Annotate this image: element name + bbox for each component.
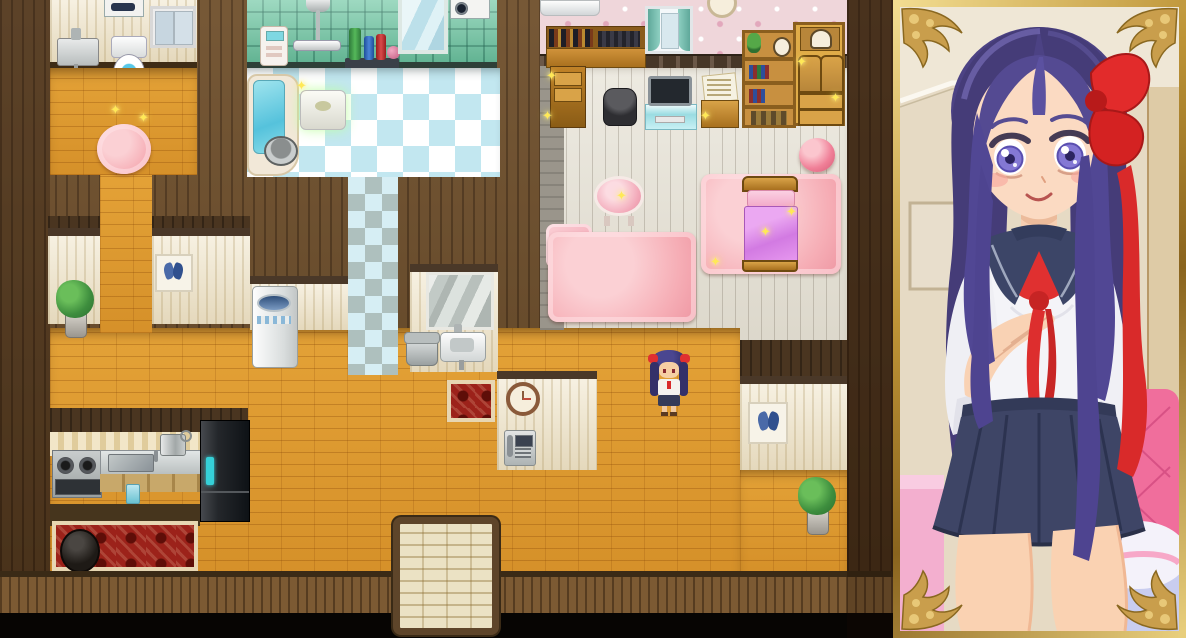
sprite-eye bbox=[672, 369, 675, 373]
bottle-red bbox=[376, 34, 386, 60]
panel-buttons bbox=[266, 43, 282, 57]
sparkle-icon: ✦ bbox=[830, 92, 841, 105]
stove bbox=[52, 450, 102, 498]
bookshelf bbox=[742, 30, 796, 128]
wall-clock bbox=[705, 0, 739, 20]
outer-wall-right-over bbox=[847, 0, 893, 638]
large-pink-rug bbox=[548, 232, 696, 322]
east-wall-top bbox=[740, 340, 847, 376]
bath-mirror bbox=[398, 0, 448, 54]
washer-lid bbox=[111, 3, 135, 11]
panel-screen bbox=[266, 31, 284, 41]
sparkle-icon: ✦ bbox=[110, 104, 121, 117]
tub-rim bbox=[404, 332, 440, 344]
burner bbox=[79, 457, 96, 474]
drum-washer bbox=[450, 0, 490, 19]
bath-corridor-tiles bbox=[348, 177, 398, 375]
shelf-clock bbox=[773, 37, 791, 57]
sparkle-icon: ✦ bbox=[138, 112, 149, 125]
dresser-door bbox=[820, 55, 844, 93]
sparkle-icon: ✦ bbox=[710, 256, 721, 269]
sprite-hair-fall bbox=[679, 362, 688, 396]
fridge-divider bbox=[201, 491, 249, 493]
pink-ball bbox=[799, 138, 835, 172]
curtain-left bbox=[648, 9, 660, 51]
laundry-tub bbox=[404, 330, 438, 366]
dresser-clock bbox=[810, 29, 832, 49]
game-screen: Love bbox=[0, 0, 1186, 638]
shelf-plant bbox=[747, 33, 761, 53]
sprite-skirt bbox=[658, 395, 680, 406]
sprite-shoe bbox=[670, 412, 677, 416]
wash-mirror bbox=[426, 272, 494, 330]
shower-hose bbox=[316, 10, 320, 42]
cooking-pot bbox=[158, 430, 188, 456]
character-portrait-panel bbox=[893, 0, 1186, 638]
butterfly-wing bbox=[171, 262, 185, 280]
counter-sink bbox=[108, 454, 154, 472]
bath-stool bbox=[300, 90, 346, 130]
portrait-illustration bbox=[900, 7, 1179, 631]
butterfly-picture bbox=[748, 402, 788, 444]
paper-lines bbox=[707, 76, 731, 96]
sparkle-icon: ✦ bbox=[786, 206, 797, 219]
pink-fluffy-rug bbox=[97, 124, 151, 174]
dresser-drawer bbox=[798, 109, 844, 126]
wall-sink bbox=[55, 26, 99, 68]
stool-soap bbox=[315, 101, 331, 111]
cup bbox=[126, 484, 140, 504]
pot-handle bbox=[180, 430, 192, 442]
sparkle-icon: ✦ bbox=[616, 190, 627, 203]
shelf-board bbox=[745, 81, 793, 85]
desk-drawer bbox=[554, 72, 582, 86]
sprite-blouse bbox=[658, 379, 680, 396]
baskets bbox=[751, 111, 787, 125]
shower-bar bbox=[293, 40, 341, 51]
sink-bowl bbox=[450, 338, 474, 352]
sparkle-icon: ✦ bbox=[760, 226, 771, 239]
sprite-eye bbox=[663, 369, 666, 373]
window-pane bbox=[155, 11, 174, 45]
plant-foliage bbox=[798, 477, 836, 515]
iron-pot bbox=[60, 529, 100, 573]
sparkle-icon: ✦ bbox=[796, 56, 807, 69]
sparkle-icon: ✦ bbox=[542, 110, 553, 123]
trash-bin bbox=[603, 88, 637, 126]
sprite-face bbox=[659, 362, 679, 378]
drum-door bbox=[455, 2, 468, 15]
window bbox=[150, 6, 196, 48]
desk-books-row bbox=[598, 31, 640, 47]
desk-drawer bbox=[554, 88, 582, 102]
small-red-rug bbox=[447, 380, 495, 422]
sparkle-icon: ✦ bbox=[296, 80, 307, 93]
refrigerator bbox=[200, 420, 250, 522]
books bbox=[749, 89, 765, 103]
air-conditioner bbox=[540, 0, 600, 16]
oven-door bbox=[55, 479, 101, 495]
player-character[interactable] bbox=[648, 348, 690, 416]
bottle-blue bbox=[364, 36, 374, 60]
outer-wall-left bbox=[0, 0, 50, 638]
washer-lid-open bbox=[257, 294, 291, 312]
phone-keys bbox=[515, 448, 531, 458]
potted-plant bbox=[797, 477, 837, 535]
frame-corner-ornament-icon bbox=[900, 7, 970, 77]
entrance-mat bbox=[393, 517, 499, 635]
shelf-board bbox=[745, 57, 793, 61]
hand-sink bbox=[440, 324, 484, 368]
curtain-right bbox=[678, 9, 690, 51]
shelf-board bbox=[745, 105, 793, 109]
sink-faucet bbox=[71, 28, 81, 40]
washer-controls bbox=[257, 316, 291, 324]
frame-corner-ornament-icon bbox=[1109, 561, 1179, 631]
tv-screen bbox=[648, 76, 692, 106]
plant-foliage bbox=[56, 280, 94, 318]
bottle-green bbox=[349, 28, 361, 60]
frame-corner-ornament-icon bbox=[1109, 7, 1179, 77]
washing-machine-top bbox=[104, 0, 144, 17]
laundry-washing-machine bbox=[252, 286, 296, 366]
west-corridor-floor bbox=[100, 173, 152, 333]
hall-clock bbox=[506, 382, 540, 416]
vanity-leg bbox=[604, 216, 610, 226]
books bbox=[749, 65, 769, 79]
desk-top bbox=[546, 48, 646, 68]
left-wall-trim bbox=[48, 216, 100, 228]
tv-player bbox=[655, 116, 685, 123]
wooden-dresser bbox=[793, 22, 845, 126]
butterfly-wing bbox=[765, 411, 781, 432]
fridge-handle bbox=[206, 457, 214, 485]
sink-pipe bbox=[459, 360, 464, 370]
clock-face bbox=[707, 0, 737, 18]
bath-control-panel bbox=[260, 26, 288, 66]
desk-books-row bbox=[549, 29, 593, 47]
potted-plant bbox=[55, 280, 95, 338]
window-pane bbox=[174, 11, 193, 45]
butterfly-picture bbox=[155, 254, 193, 292]
phone-screen bbox=[515, 435, 533, 447]
wall-phone bbox=[504, 430, 536, 466]
tv-on-stand bbox=[645, 76, 695, 128]
clock-hand bbox=[523, 398, 531, 400]
counter-cabinets bbox=[100, 474, 200, 492]
phone-handset bbox=[507, 435, 513, 457]
sprite-tie bbox=[667, 381, 671, 389]
frame-corner-ornament-icon bbox=[900, 561, 970, 631]
kitchen-counter bbox=[100, 450, 200, 492]
left-wall-trim bbox=[152, 216, 250, 228]
curtained-window bbox=[645, 6, 693, 54]
game-map-viewport[interactable]: Love bbox=[0, 0, 893, 638]
sprite-shoe bbox=[661, 412, 668, 416]
window-pane bbox=[661, 13, 679, 49]
vanity-leg bbox=[628, 216, 634, 226]
sparkle-icon: ✦ bbox=[700, 110, 711, 123]
shampoo-shelf bbox=[345, 28, 399, 70]
burner bbox=[57, 457, 74, 474]
sink-basin bbox=[57, 38, 99, 66]
bucket bbox=[264, 136, 298, 166]
sparkle-icon: ✦ bbox=[546, 70, 557, 83]
bed-footboard bbox=[742, 260, 798, 272]
